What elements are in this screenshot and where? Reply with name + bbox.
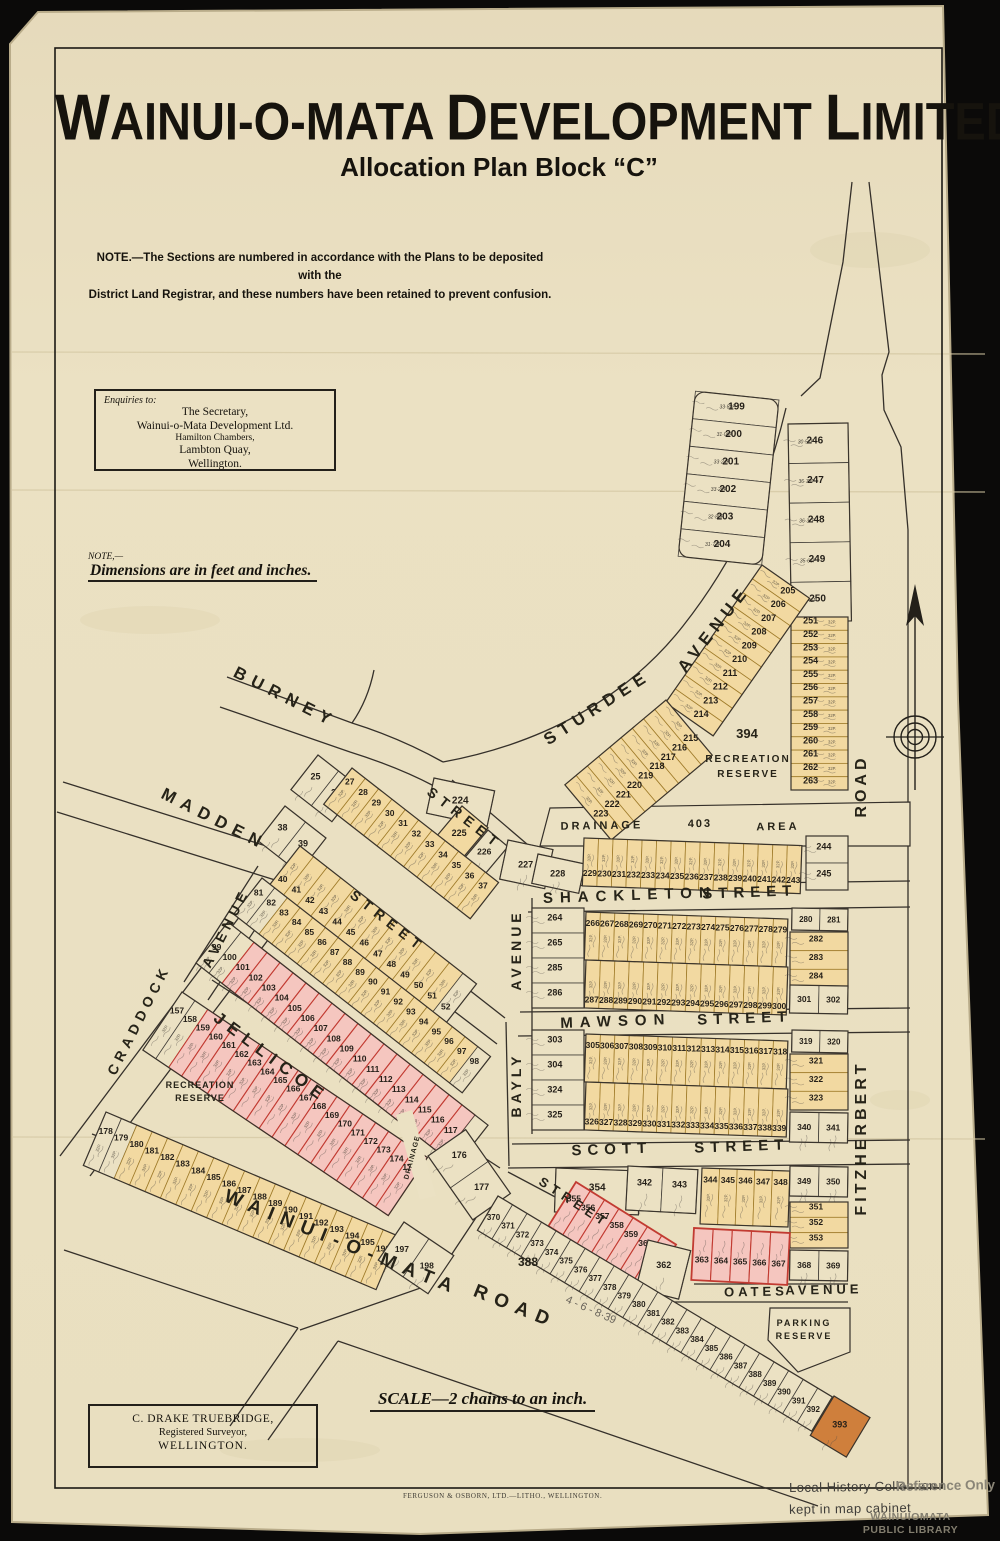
lot-number: 334 (700, 1121, 714, 1131)
lot-number: 373 (530, 1239, 544, 1248)
lot-343 (661, 1168, 698, 1214)
lot-number: 316 (744, 1045, 758, 1055)
lot-area: 32·85P (708, 515, 725, 521)
lot-number: 46 (360, 938, 370, 948)
lot-area: 32P. (660, 983, 665, 991)
lot-number: 283 (809, 952, 823, 962)
lot-number: 378 (603, 1283, 617, 1292)
surveyor-role: Registered Surveyor, (90, 1427, 316, 1438)
lot-number: 108 (327, 1033, 341, 1043)
lot-number: 282 (809, 933, 823, 943)
lot-number: 285 (547, 963, 562, 973)
lot-number: 274 (701, 922, 715, 932)
lot-number: 384 (690, 1335, 704, 1344)
lot-area: 32P. (732, 1107, 737, 1115)
lot-number: 45 (346, 927, 356, 937)
lot-number: 317 (759, 1046, 773, 1056)
lot-number: 280 (799, 915, 813, 924)
page-subtitle: Allocation Plan Block “C” (55, 152, 943, 183)
block-lots-244-245: 244245 (799, 836, 848, 890)
lot-number: 337 (743, 1122, 757, 1132)
lot-number: 388 (748, 1370, 762, 1379)
lot-area: 32P. (706, 1193, 711, 1201)
lot-number: 329 (628, 1118, 642, 1128)
lot-255 (791, 670, 848, 683)
lot-number: 183 (176, 1159, 190, 1169)
lot-number: 253 (803, 642, 818, 652)
lot-number: 89 (355, 967, 365, 977)
lot-number: 239 (728, 873, 742, 883)
lot-number: 325 (547, 1110, 562, 1120)
lot-number: 212 (713, 682, 728, 692)
lot-area: 32P. (660, 936, 665, 944)
lot-area: 31·09P (717, 432, 734, 438)
lot-area: 32P. (675, 983, 680, 991)
lot-number: 305 (586, 1040, 600, 1050)
lot-number: 90 (368, 977, 378, 987)
lot-area: 32P. (828, 713, 836, 718)
lot-area: 32P. (790, 860, 795, 868)
lot-area: 32P. (617, 935, 622, 943)
lot-area: 32P. (631, 982, 636, 990)
lot-area: 32P. (617, 981, 622, 989)
lot-area: 32P. (747, 1062, 752, 1070)
lot-number: 238 (714, 872, 728, 882)
lot-area: 32P. (776, 1196, 781, 1204)
lot-number: 237 (699, 872, 713, 882)
lot-number: 181 (145, 1146, 159, 1156)
lot-number: 386 (719, 1353, 733, 1362)
lot-area: 32P. (718, 1107, 723, 1115)
lot-number: 31 (398, 818, 408, 828)
lot-number: 273 (687, 921, 701, 931)
lot-number: 43 (319, 906, 329, 916)
lot-number: 302 (826, 995, 840, 1005)
lot-number: 271 (658, 920, 672, 930)
lot-number: 178 (99, 1126, 113, 1136)
lot-number: 364 (714, 1256, 728, 1266)
lot-number: 185 (206, 1172, 220, 1182)
lot-number: 94 (419, 1016, 429, 1026)
lot-number: 270 (643, 920, 657, 930)
lot-263 (791, 777, 848, 790)
lot-number: 34 (438, 849, 448, 859)
lot-number: 387 (734, 1361, 748, 1370)
lot-number: 351 (809, 1202, 823, 1212)
lot-area: 32P. (761, 986, 766, 994)
library-stamp-line2: PUBLIC LIBRARY (843, 1524, 978, 1537)
lot-area: 32P. (689, 984, 694, 992)
lot-number: 256 (803, 682, 818, 692)
lot-number: 275 (715, 922, 729, 932)
lot-342 (626, 1166, 663, 1212)
library-stamp: WAINUIOMATA PUBLIC LIBRARY (843, 1511, 978, 1537)
lot-area: 32P. (603, 934, 608, 942)
lot-number: 38 (277, 822, 287, 832)
lot-number: 88 (343, 957, 353, 967)
lot-area: 32P. (828, 686, 836, 691)
area-label-parking: PARKING (777, 1318, 832, 1328)
lot-number: 293 (671, 998, 685, 1008)
lot-number: 211 (723, 668, 738, 678)
lot-number: 310 (658, 1042, 672, 1052)
lot-area: 32P. (776, 941, 781, 949)
lot-number: 372 (516, 1230, 530, 1239)
lot-area: 32P. (828, 633, 836, 638)
block-lots-326-339: 32632P.32732P.32832P.32932P.33032P.33132… (584, 1082, 788, 1137)
lot-number: 82 (267, 897, 277, 907)
lot-number: 371 (501, 1222, 515, 1231)
lot-number: 230 (597, 868, 611, 878)
street-label-403: 403 (688, 818, 713, 830)
lot-number: 320 (827, 1038, 841, 1047)
lot-number: 348 (774, 1177, 788, 1187)
lot-number: 263 (803, 775, 818, 785)
lot-number: 266 (586, 918, 600, 928)
lot-number: 290 (628, 996, 642, 1006)
dimensions-note: NOTE,— Dimensions are in feet and inches… (88, 552, 317, 580)
lot-number: 313 (701, 1044, 715, 1054)
street-label-avenue: AVENUE (508, 909, 524, 990)
lot-area: 32P. (747, 986, 752, 994)
sections-note-line2: District Land Registrar, and these numbe… (86, 286, 554, 304)
lot-number: 223 (593, 808, 608, 818)
lot-area: 33·24P (714, 460, 731, 466)
lot-number: 286 (547, 988, 562, 998)
lot-number: 104 (275, 993, 289, 1003)
block-col-303-325: 303304324325 (526, 1030, 584, 1130)
lot-number: 350 (826, 1177, 840, 1187)
lot-area: 32P. (828, 700, 836, 705)
lot-number: 380 (632, 1300, 646, 1309)
lot-number: 315 (730, 1045, 744, 1055)
lot-number: 339 (772, 1123, 786, 1133)
lot-number: 106 (301, 1013, 315, 1023)
lot-area: 32P. (761, 859, 766, 867)
lot-number: 107 (314, 1023, 328, 1033)
lot-number: 324 (547, 1085, 562, 1095)
lot-number: 319 (799, 1037, 813, 1046)
lot-area: 32P. (718, 1061, 723, 1069)
block-col-264-286: 264265285286 (526, 908, 584, 1008)
lot-number: 208 (751, 627, 766, 637)
lot-number: 365 (733, 1257, 747, 1267)
lot-number: 340 (797, 1122, 811, 1132)
lot-area: 32P. (660, 1105, 665, 1113)
lot-number: 233 (641, 870, 655, 880)
lot-number: 113 (392, 1084, 406, 1094)
lot-number: 116 (431, 1115, 445, 1125)
lot-256 (791, 684, 848, 697)
lot-number: 112 (379, 1074, 393, 1084)
lot-number: 259 (803, 722, 818, 732)
library-stamp-line1: WAINUIOMATA (843, 1511, 978, 1524)
printer-credit: FERGUSON & OSBORN, LTD.—LITHO., WELLINGT… (403, 1492, 602, 1500)
lot-area: 32P. (603, 1056, 608, 1064)
lot-number: 25 (310, 771, 320, 781)
lot-number: 110 (353, 1054, 367, 1064)
lot-253 (791, 644, 848, 657)
lot-number: 335 (714, 1121, 728, 1131)
lot-number: 269 (629, 919, 643, 929)
lot-number: 366 (752, 1258, 766, 1268)
lot-number: 32 (412, 829, 422, 839)
lot-number: 385 (705, 1344, 719, 1353)
lot-area: 32P. (603, 1103, 608, 1111)
lot-number: 277 (744, 923, 758, 933)
sections-note-line1: NOTE.—The Sections are numbered in accor… (86, 249, 554, 286)
lot-number: 308 (629, 1041, 643, 1051)
lot-number: 180 (129, 1139, 143, 1149)
lot-number: 240 (743, 873, 757, 883)
lot-number: 279 (773, 924, 787, 934)
lot-number: 331 (657, 1119, 671, 1129)
lot-number: 206 (771, 599, 786, 609)
lot-number: 292 (657, 997, 671, 1007)
lot-number: 255 (803, 669, 818, 679)
lot-number: 227 (518, 859, 533, 869)
surveyor-box: C. DRAKE TRUEBRIDGE, Registered Surveyor… (88, 1404, 318, 1468)
lot-area: 32P. (828, 646, 836, 651)
lot-number: 244 (816, 842, 831, 852)
lot-number: 245 (816, 869, 831, 879)
lot-259 (791, 723, 848, 736)
street-label-street: STREET (702, 882, 798, 902)
area-label-394: 394 (736, 726, 758, 741)
lot-area: 32P. (675, 937, 680, 945)
dimensions-note-label: NOTE,— (88, 552, 317, 562)
lot-number: 252 (803, 629, 818, 639)
lot-number: 326 (585, 1117, 599, 1127)
lot-area: 32P. (747, 940, 752, 948)
lot-number: 353 (809, 1232, 823, 1242)
lot-number: 33 (425, 839, 435, 849)
lot-number: 278 (759, 924, 773, 934)
lot-number: 101 (236, 962, 250, 972)
lot-area: 32P. (660, 1058, 665, 1066)
lot-area: 30·56P (798, 439, 815, 445)
lot-number: 341 (826, 1123, 840, 1133)
lot-area: 32P. (732, 858, 737, 866)
lot-area: 32P. (603, 981, 608, 989)
lot-number: 228 (550, 869, 565, 879)
lot-number: 40 (278, 874, 288, 884)
lot-area: 32P. (723, 1194, 728, 1202)
lot-area: 36·79P (798, 479, 815, 485)
lot-area: 32P. (828, 753, 836, 758)
lot-number: 276 (730, 923, 744, 933)
lot-area: 33·82P (719, 404, 736, 410)
street-label-avenue: AVENUE (785, 1281, 862, 1297)
lot-number: 257 (803, 696, 818, 706)
lot-number: 102 (249, 972, 263, 982)
area-label-reserve: RESERVE (717, 769, 779, 780)
lot-number: 97 (457, 1046, 467, 1056)
lot-number: 95 (432, 1026, 442, 1036)
lot-area: 32P. (674, 856, 679, 864)
block-lots-344-348: 34432P.34532P.34632P.34732P.34832P. (700, 1168, 790, 1227)
lot-area: 33·29P (711, 487, 728, 493)
lot-area: 32P. (588, 980, 593, 988)
enquiries-box: Enquiries to: The Secretary, Wainui-o-Ma… (94, 389, 336, 471)
lot-area: 32P. (828, 620, 836, 625)
lot-number: 307 (614, 1041, 628, 1051)
lot-area: 32P. (631, 1104, 636, 1112)
street-label-bayly: BAYLY (508, 1053, 524, 1118)
lot-number: 182 (160, 1152, 174, 1162)
lot-number: 260 (803, 735, 818, 745)
lot-number: 369 (826, 1261, 840, 1271)
lot-number: 377 (589, 1274, 603, 1283)
area-label-reserve: RESERVE (776, 1331, 833, 1341)
lot-number: 176 (452, 1150, 467, 1160)
page-title: WAINUI-O-MATA DEVELOPMENT LIMITED (55, 80, 943, 155)
enquiries-heading: Enquiries to: (104, 395, 334, 406)
lot-number: 37 (478, 881, 488, 891)
lot-257 (791, 697, 848, 710)
lot-number: 91 (381, 987, 391, 997)
lot-number: 289 (613, 996, 627, 1006)
lot-area: 32P. (761, 940, 766, 948)
lot-area: 32P. (776, 1063, 781, 1071)
lot-number: 103 (262, 983, 276, 993)
lot-area: 32P. (586, 853, 591, 861)
area-label-recreation: RECREATION (166, 1080, 235, 1090)
lot-number: 114 (405, 1094, 419, 1104)
block-lots-301-302: 301302 (790, 985, 848, 1014)
lot-number: 210 (732, 654, 747, 664)
lot-number: 368 (797, 1260, 811, 1270)
lot-number: 333 (686, 1120, 700, 1130)
lot-number: 179 (114, 1133, 128, 1143)
lot-number: 47 (373, 948, 383, 958)
lot-number: 312 (687, 1043, 701, 1053)
lot-area: 32P. (645, 855, 650, 863)
block-lots-305-318: 30532P.30632P.30732P.30832P.30932P.31032… (584, 1034, 788, 1089)
block-lots-287-300: 28732P.28832P.28932P.29032P.29132P.29232… (584, 960, 788, 1015)
surveyor-city: WELLINGTON. (90, 1440, 316, 1452)
enquiries-line: Hamilton Chambers, (96, 433, 334, 444)
lot-area: 35·66P (800, 558, 817, 564)
lot-number: 359 (624, 1229, 638, 1239)
block-lots-321-323: 321322323 (785, 1054, 848, 1110)
lot-area: 32P. (646, 982, 651, 990)
lot-number: 318 (773, 1046, 787, 1056)
lot-number: 236 (685, 871, 699, 881)
lot-number: 374 (545, 1248, 559, 1257)
block-lots-342-343: 342343 (626, 1166, 698, 1217)
lot-number: 306 (600, 1040, 614, 1050)
enquiries-line: The Secretary, (96, 406, 334, 420)
lot-number: 214 (694, 709, 709, 719)
lot-number: 342 (637, 1177, 652, 1187)
lot-number: 213 (703, 695, 718, 705)
lot-number: 27 (345, 777, 355, 787)
lot-area: 32P. (646, 1058, 651, 1066)
lot-number: 349 (797, 1176, 811, 1186)
lot-area: 31·73P (705, 542, 722, 548)
lot-area: 32P. (601, 854, 606, 862)
lot-area: 32P. (761, 1062, 766, 1070)
lot-number: 36 (465, 870, 475, 880)
lot-261 (791, 750, 848, 763)
allocation-plan-map: 19933·82P20031·09P20133·24P20233·29P2033… (0, 0, 1000, 1541)
lot-number: 358 (610, 1220, 624, 1230)
lot-area: 32P. (775, 860, 780, 868)
lot-number: 234 (655, 870, 669, 880)
street-label-street: STREET (697, 1008, 793, 1028)
block-lots-282-284: 282283284 (785, 932, 848, 988)
lot-number: 328 (613, 1118, 627, 1128)
lot-number: 296 (714, 999, 728, 1009)
street-label-drainage: DRAINAGE (561, 819, 644, 832)
lot-number: 48 (387, 959, 397, 969)
lot-number: 367 (771, 1259, 785, 1269)
lot-number: 375 (560, 1257, 574, 1266)
surveyor-name: C. DRAKE TRUEBRIDGE, (90, 1413, 316, 1425)
lot-number: 42 (305, 895, 315, 905)
lot-area: 32P. (704, 1106, 709, 1114)
street-label-fitzherbert: FITZHERBERT (853, 1060, 870, 1215)
lot-254 (791, 657, 848, 670)
lot-number: 87 (330, 947, 340, 957)
lot-number: 41 (292, 885, 302, 895)
street-label-street: STREET (694, 1136, 790, 1156)
lot-area: 36·31P (799, 519, 816, 525)
street-label-area: AREA (756, 821, 799, 834)
lot-area: 32P. (588, 934, 593, 942)
lot-area: 32P. (675, 1059, 680, 1067)
lot-area: 32P. (688, 857, 693, 865)
block-lots-319-320: 319320 (792, 1030, 848, 1053)
lot-number: 29 (372, 797, 382, 807)
lot-area: 32P. (828, 726, 836, 731)
lot-area: 32P. (758, 1195, 763, 1203)
lot-number: 323 (809, 1093, 823, 1103)
lot-number: 390 (778, 1388, 792, 1397)
lot-number: 379 (618, 1292, 632, 1301)
lot-number: 332 (671, 1120, 685, 1130)
lot-number: 309 (643, 1042, 657, 1052)
street-label-oates: OATES (724, 1283, 788, 1299)
lot-260 (791, 737, 848, 750)
lot-number: 184 (191, 1165, 205, 1175)
lot-number: 383 (676, 1326, 690, 1335)
lot-area: 32P. (704, 984, 709, 992)
lot-252 (791, 630, 848, 643)
lot-number: 298 (743, 1000, 757, 1010)
lot-area: 32P. (689, 1106, 694, 1114)
lot-number: 207 (761, 613, 776, 623)
lot-number: 83 (279, 907, 289, 917)
lot-number: 264 (547, 913, 562, 923)
lot-number: 301 (797, 994, 811, 1004)
lot-262 (791, 763, 848, 776)
lot-number: 272 (672, 921, 686, 931)
lot-number: 391 (792, 1396, 806, 1405)
lot-area: 32P. (776, 987, 781, 995)
lot-number: 338 (758, 1123, 772, 1133)
scanned-map-sheet: 19933·82P20031·09P20133·24P20233·29P2033… (0, 0, 1000, 1541)
lot-area: 32P. (704, 938, 709, 946)
lot-area: 32P. (689, 1060, 694, 1068)
lot-area: 32P. (732, 939, 737, 947)
lot-number: 345 (721, 1175, 735, 1185)
lot-number: 347 (756, 1176, 770, 1186)
street-label-scott: SCOTT (571, 1140, 652, 1160)
lot-number: 304 (547, 1060, 562, 1070)
block-lots-251-263: 25132P.25232P.25332P.25432P.25532P.25632… (791, 616, 848, 790)
